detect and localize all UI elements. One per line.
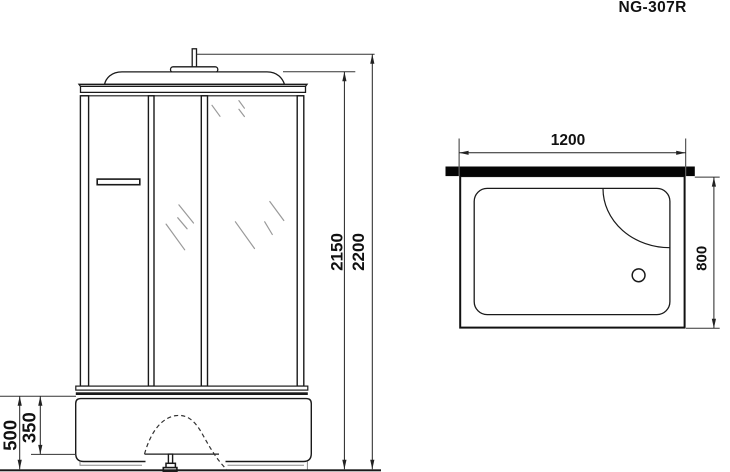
svg-text:350: 350 [18,412,39,443]
svg-text:800: 800 [694,246,711,271]
svg-text:2200: 2200 [349,233,368,271]
svg-text:2150: 2150 [328,233,347,271]
svg-text:1200: 1200 [551,132,585,149]
svg-text:NG-307R: NG-307R [619,0,687,16]
